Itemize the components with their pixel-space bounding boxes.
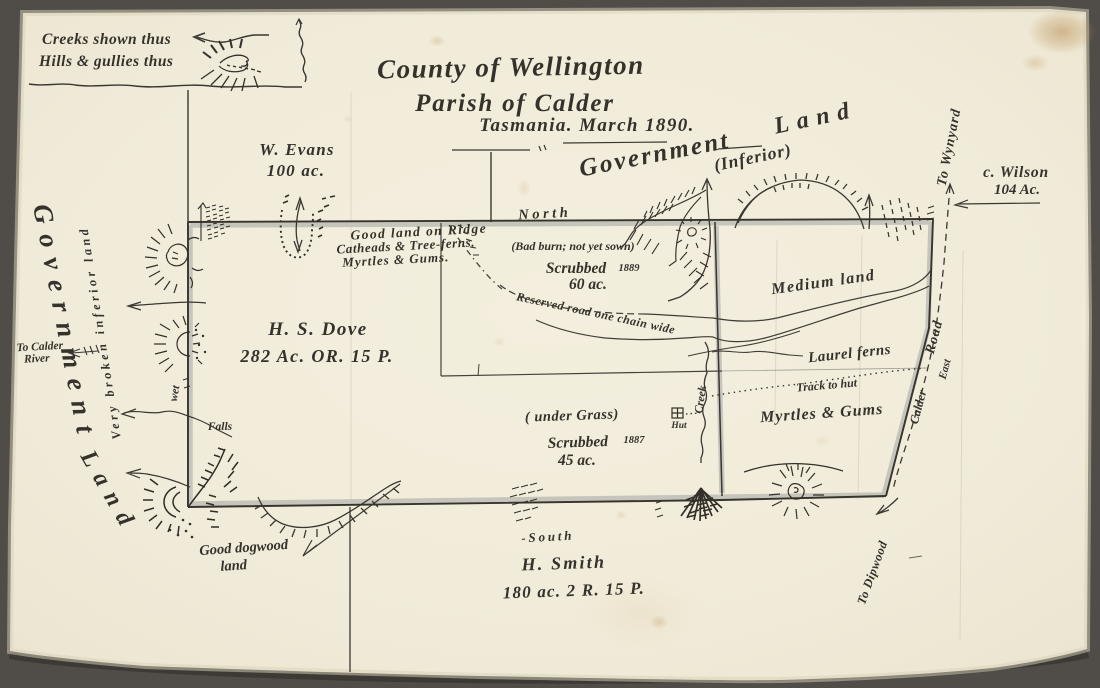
- svg-text:-South: -South: [521, 528, 575, 546]
- svg-text:Falls: Falls: [207, 421, 233, 433]
- svg-text:c. Wilson: c. Wilson: [983, 164, 1049, 181]
- svg-text:104 Ac.: 104 Ac.: [994, 182, 1040, 198]
- svg-text:Scrubbed: Scrubbed: [547, 433, 608, 452]
- svg-text:Hut: Hut: [670, 421, 687, 431]
- svg-text:H. S. Dove: H. S. Dove: [267, 319, 367, 340]
- svg-text:Creeks shown thus: Creeks shown thus: [42, 31, 171, 48]
- svg-text:Parish of Calder: Parish of Calder: [414, 90, 615, 117]
- svg-text:( under Grass): ( under Grass): [525, 406, 620, 425]
- svg-text:Scrubbed: Scrubbed: [546, 260, 607, 277]
- svg-text:45 ac.: 45 ac.: [557, 452, 596, 469]
- svg-text:100 ac.: 100 ac.: [267, 161, 325, 180]
- svg-text:River: River: [23, 352, 51, 365]
- svg-text:Hills & gullies thus: Hills & gullies thus: [38, 53, 173, 70]
- svg-text:County of Wellington: County of Wellington: [377, 50, 645, 85]
- svg-text:282 Ac. OR. 15 P.: 282 Ac. OR. 15 P.: [239, 346, 393, 366]
- svg-text:North: North: [517, 205, 572, 224]
- svg-text:60 ac.: 60 ac.: [569, 276, 607, 293]
- svg-text:land: land: [220, 557, 248, 575]
- svg-text:1887: 1887: [624, 435, 646, 446]
- svg-text:Tasmania. March 1890.: Tasmania. March 1890.: [479, 115, 695, 136]
- svg-text:H. Smith: H. Smith: [520, 552, 606, 575]
- svg-text:W. Evans: W. Evans: [259, 140, 334, 159]
- svg-text:1889: 1889: [619, 263, 641, 274]
- svg-text:(Bad burn; not yet sown): (Bad burn; not yet sown): [511, 239, 634, 253]
